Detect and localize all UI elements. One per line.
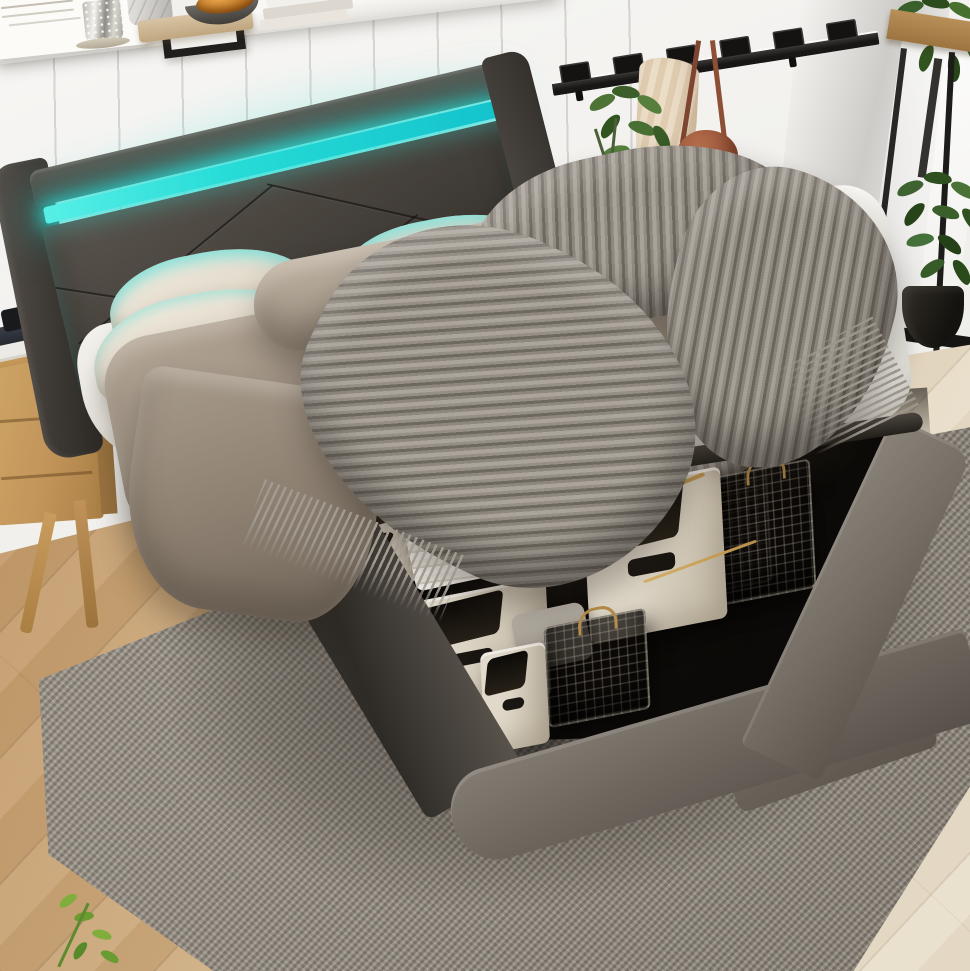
plant-leaf	[71, 940, 90, 962]
plant-leaf	[91, 928, 113, 942]
scene-root	[0, 0, 970, 971]
plant-leaf	[57, 891, 79, 910]
plant-leaf	[99, 948, 121, 966]
foreground-sprig	[0, 0, 970, 971]
